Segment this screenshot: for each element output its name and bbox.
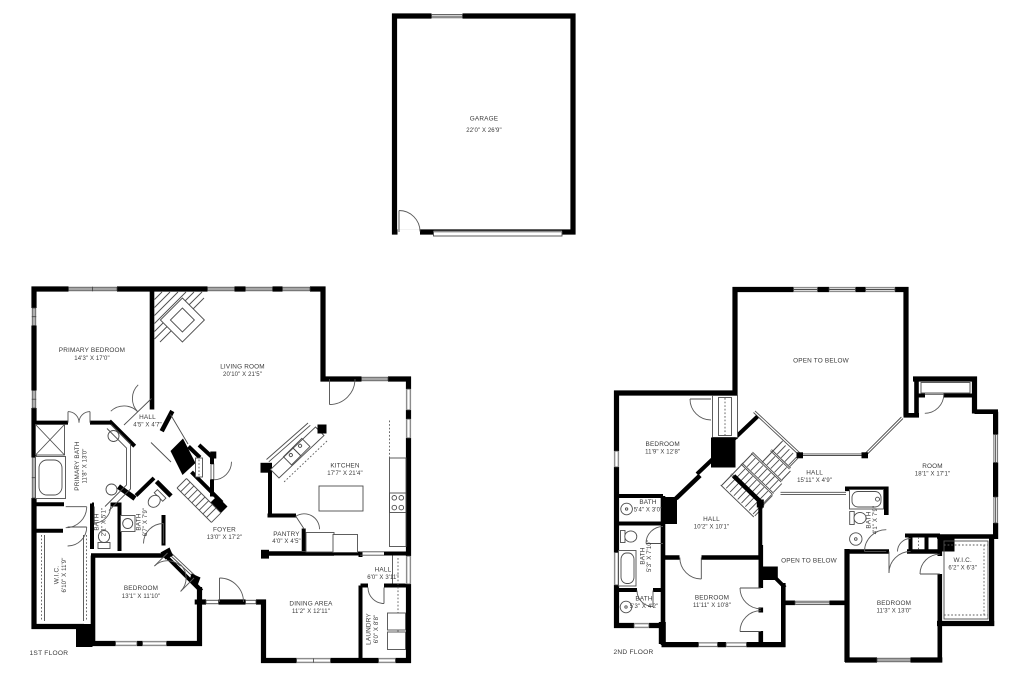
svg-text:10'2" X 10'1": 10'2" X 10'1" (694, 524, 729, 530)
svg-text:GARAGE: GARAGE (470, 116, 498, 123)
svg-text:PRIMARY BATH: PRIMARY BATH (74, 441, 81, 491)
svg-text:11'9" X 12'8": 11'9" X 12'8" (645, 449, 680, 455)
svg-text:2'1" X 5'1": 2'1" X 5'1" (101, 508, 107, 537)
svg-text:11'3" X 13'0": 11'3" X 13'0" (876, 608, 911, 614)
svg-text:18'1" X 17'1": 18'1" X 17'1" (915, 472, 950, 478)
svg-text:BATH: BATH (639, 499, 656, 506)
svg-text:HALL: HALL (806, 469, 823, 476)
svg-text:BEDROOM: BEDROOM (124, 585, 158, 592)
svg-text:20'10" X 21'5": 20'10" X 21'5" (223, 372, 262, 378)
svg-text:5'4" X 3'0": 5'4" X 3'0" (634, 507, 663, 513)
svg-text:2ND FLOOR: 2ND FLOOR (614, 649, 654, 656)
svg-text:6'0" X 8'8": 6'0" X 8'8" (374, 615, 380, 644)
svg-text:17'7" X 21'4": 17'7" X 21'4" (327, 471, 362, 477)
svg-text:BEDROOM: BEDROOM (877, 600, 911, 607)
svg-text:22'0" X 26'9": 22'0" X 26'9" (466, 128, 501, 134)
svg-text:W.I.C.: W.I.C. (54, 566, 61, 585)
svg-text:KITCHEN: KITCHEN (330, 462, 360, 469)
svg-text:DINING AREA: DINING AREA (289, 600, 333, 607)
svg-text:W.I.C.: W.I.C. (953, 557, 972, 564)
svg-text:BATH: BATH (639, 547, 646, 564)
svg-text:4'0" X 4'5": 4'0" X 4'5" (272, 539, 301, 545)
svg-text:5'3" X 7'10": 5'3" X 7'10" (647, 540, 653, 572)
svg-text:13'1" X 11'10": 13'1" X 11'10" (122, 594, 160, 600)
svg-text:FOYER: FOYER (213, 526, 236, 533)
svg-text:BEDROOM: BEDROOM (695, 594, 729, 601)
svg-text:BATH: BATH (865, 511, 872, 528)
svg-text:ROOM: ROOM (922, 463, 943, 470)
svg-text:11'8" X 13'0": 11'8" X 13'0" (82, 448, 88, 483)
svg-text:BATH: BATH (135, 513, 142, 530)
svg-text:6'2" X 6'3": 6'2" X 6'3" (948, 565, 977, 571)
svg-text:11'11" X 10'8": 11'11" X 10'8" (693, 603, 731, 609)
svg-text:11'2" X 12'11": 11'2" X 12'11" (292, 609, 330, 615)
svg-text:5'3" X 4'2": 5'3" X 4'2" (630, 604, 659, 610)
svg-text:15'11" X 4'9": 15'11" X 4'9" (797, 478, 832, 484)
svg-text:13'0" X 17'2": 13'0" X 17'2" (207, 535, 242, 541)
svg-text:PANTRY: PANTRY (273, 531, 300, 538)
svg-text:OPEN TO BELOW: OPEN TO BELOW (793, 358, 850, 365)
svg-text:14'3" X 17'0": 14'3" X 17'0" (74, 356, 109, 362)
svg-text:BATH: BATH (94, 513, 101, 530)
svg-text:OPEN TO BELOW: OPEN TO BELOW (781, 557, 838, 564)
svg-text:HALL: HALL (375, 566, 392, 573)
svg-text:BEDROOM: BEDROOM (646, 441, 680, 448)
svg-text:4'1" X 7'9": 4'1" X 7'9" (873, 506, 879, 535)
svg-text:HALL: HALL (703, 516, 720, 523)
svg-text:1ST FLOOR: 1ST FLOOR (30, 650, 69, 657)
svg-text:LIVING ROOM: LIVING ROOM (220, 363, 265, 370)
svg-text:PRIMARY BEDROOM: PRIMARY BEDROOM (59, 347, 125, 354)
svg-text:6'10" X 11'9": 6'10" X 11'9" (62, 557, 68, 592)
svg-text:HALL: HALL (139, 414, 156, 421)
svg-text:6'0" X 3'11": 6'0" X 3'11" (367, 575, 399, 581)
svg-text:LAUNDRY: LAUNDRY (366, 613, 373, 645)
svg-text:BATH: BATH (635, 595, 652, 602)
svg-text:6'7" X 7'9": 6'7" X 7'9" (143, 508, 149, 537)
svg-text:4'5" X 4'7": 4'5" X 4'7" (133, 422, 162, 428)
